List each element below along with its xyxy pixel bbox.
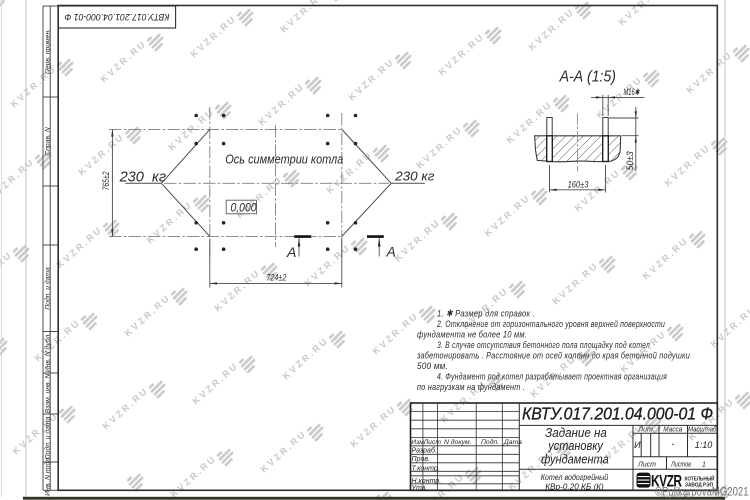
svg-text:KVZR.RU: KVZR.RU (145, 199, 195, 245)
svg-text:0,000: 0,000 (231, 200, 257, 214)
svg-text:KVZR.RU: KVZR.RU (257, 81, 307, 127)
svg-text:N докум.: N докум. (444, 438, 472, 446)
svg-text:Масса: Масса (663, 426, 682, 433)
svg-text:Масштаб: Масштаб (688, 425, 717, 433)
svg-text:Лист: Лист (423, 439, 442, 446)
svg-text:KVZR.RU: KVZR.RU (55, 224, 105, 270)
svg-text:Подп. и дата: Подп. и дата (44, 267, 52, 310)
svg-text:KVZR.RU: KVZR.RU (393, 217, 443, 263)
svg-text:KVZR.RU: KVZR.RU (11, 410, 61, 456)
svg-text:Лит.: Лит. (637, 426, 654, 433)
svg-text:Утв.: Утв. (411, 485, 428, 492)
svg-text:KVZR.RU: KVZR.RU (371, 310, 421, 356)
svg-text:М16✱: М16✱ (624, 87, 640, 97)
svg-text:КВр-0,20 КБ (К): КВр-0,20 КБ (К) (545, 481, 604, 491)
svg-text:KVZR.RU: KVZR.RU (617, 0, 667, 27)
svg-text:Инв. N подл.: Инв. N подл. (44, 456, 52, 496)
svg-text:KVZR.RU: KVZR.RU (189, 13, 239, 59)
svg-text:Взам. инв. N: Взам. инв. N (45, 374, 52, 414)
svg-text:Пров.: Пров. (412, 456, 431, 463)
svg-text:KVZR.RU: KVZR.RU (281, 335, 331, 381)
svg-text:230 кг: 230 кг (119, 168, 167, 185)
svg-text:KVZR.RU: KVZR.RU (169, 453, 219, 499)
svg-text:Подп.: Подп. (481, 438, 499, 446)
svg-text:А-А (1:5): А-А (1:5) (559, 69, 616, 86)
svg-text:А: А (386, 244, 396, 260)
svg-text:KVZR.RU: KVZR.RU (483, 192, 533, 238)
svg-text:KVZR.RU: KVZR.RU (99, 38, 149, 84)
svg-text:KVZR.RU: KVZR.RU (349, 403, 399, 449)
svg-text:4. Фундамент под котел разраба: 4. Фундамент под котел разрабатывает про… (437, 372, 667, 383)
svg-text:1:10: 1:10 (695, 440, 713, 450)
svg-text:724±2: 724±2 (267, 273, 287, 284)
svg-text:КВТУ.017.201.04.000-01 Ф: КВТУ.017.201.04.000-01 Ф (65, 12, 170, 22)
svg-text:50±3: 50±3 (625, 151, 636, 171)
svg-text:А: А (286, 244, 296, 260)
svg-text:И: И (634, 440, 641, 450)
svg-text:KVZR.RU: KVZR.RU (641, 235, 691, 281)
svg-text:Инв. N дубл.: Инв. N дубл. (44, 333, 52, 372)
svg-text:©PolikarpovaMG2021: ©PolikarpovaMG2021 (655, 486, 749, 499)
svg-text:Справ. N: Справ. N (45, 127, 52, 156)
svg-text:160±3: 160±3 (568, 179, 589, 190)
svg-text:1. ✱ Размер для справок .: 1. ✱ Размер для справок . (437, 309, 535, 320)
svg-text:KVZR.RU: KVZR.RU (437, 31, 487, 77)
svg-text:забетонировать . Расстояние от: забетонировать . Расстояние от осей коло… (416, 351, 690, 362)
svg-text:KVZR.RU: KVZR.RU (259, 428, 309, 474)
svg-text:230 кг: 230 кг (394, 169, 435, 184)
svg-text:фундамента: фундамента (541, 451, 609, 466)
svg-text:Н.контр.: Н.контр. (412, 478, 442, 485)
svg-text:KVZR.RU: KVZR.RU (213, 267, 263, 313)
svg-text:-: - (672, 439, 675, 449)
svg-text:по нагрузкам на фундамент .: по нагрузкам на фундамент . (417, 382, 525, 393)
svg-text:765±2: 765±2 (101, 171, 112, 190)
svg-text:Лист: Лист (637, 462, 656, 469)
svg-text:Подп. и дата: Подп. и дата (44, 417, 52, 460)
svg-text:KVZR.RU: KVZR.RU (415, 124, 465, 170)
svg-text:KVZR.RU: KVZR.RU (685, 49, 735, 95)
svg-text:1: 1 (702, 462, 706, 469)
svg-text:KVZR.RU: KVZR.RU (709, 303, 750, 349)
svg-text:2. Отклонение от горизонтально: 2. Отклонение от горизонтального уровня … (436, 319, 665, 330)
svg-text:Ось симметрии котла: Ось симметрии котла (225, 153, 343, 167)
svg-text:KVZR.RU: KVZR.RU (573, 167, 623, 213)
svg-text:Разраб.: Разраб. (412, 447, 437, 455)
svg-text:Перв. примен.: Перв. примен. (45, 29, 52, 74)
svg-text:KVZR.RU: KVZR.RU (551, 260, 601, 306)
svg-text:KVZR.RU: KVZR.RU (123, 292, 173, 338)
svg-text:KVZR.RU: KVZR.RU (663, 142, 713, 188)
svg-text:КОТЕЛЬНЫЙ: КОТЕЛЬНЫЙ (685, 474, 715, 482)
svg-text:KVZR.RU: KVZR.RU (101, 385, 151, 431)
svg-text:фундамента не более 10 мм.: фундамента не более 10 мм. (417, 330, 527, 341)
svg-text:KVZR.RU: KVZR.RU (0, 156, 37, 202)
svg-text:KVZR.RU: KVZR.RU (527, 6, 577, 52)
svg-text:KVZR.RU: KVZR.RU (347, 56, 397, 102)
svg-text:KVZR.RU: KVZR.RU (191, 360, 241, 406)
svg-text:Т.контр.: Т.контр. (412, 465, 440, 472)
svg-text:3. В случае отсутствия бетонно: 3. В случае отсутствия бетонного пола пл… (437, 340, 650, 351)
svg-text:Листов: Листов (670, 462, 691, 469)
svg-text:Дата: Дата (503, 439, 522, 446)
svg-text:KVZR.RU: KVZR.RU (0, 249, 15, 295)
svg-text:КВТУ.017.201.04.000-01 Ф: КВТУ.017.201.04.000-01 Ф (522, 404, 713, 424)
svg-text:500 мм.: 500 мм. (417, 361, 448, 372)
